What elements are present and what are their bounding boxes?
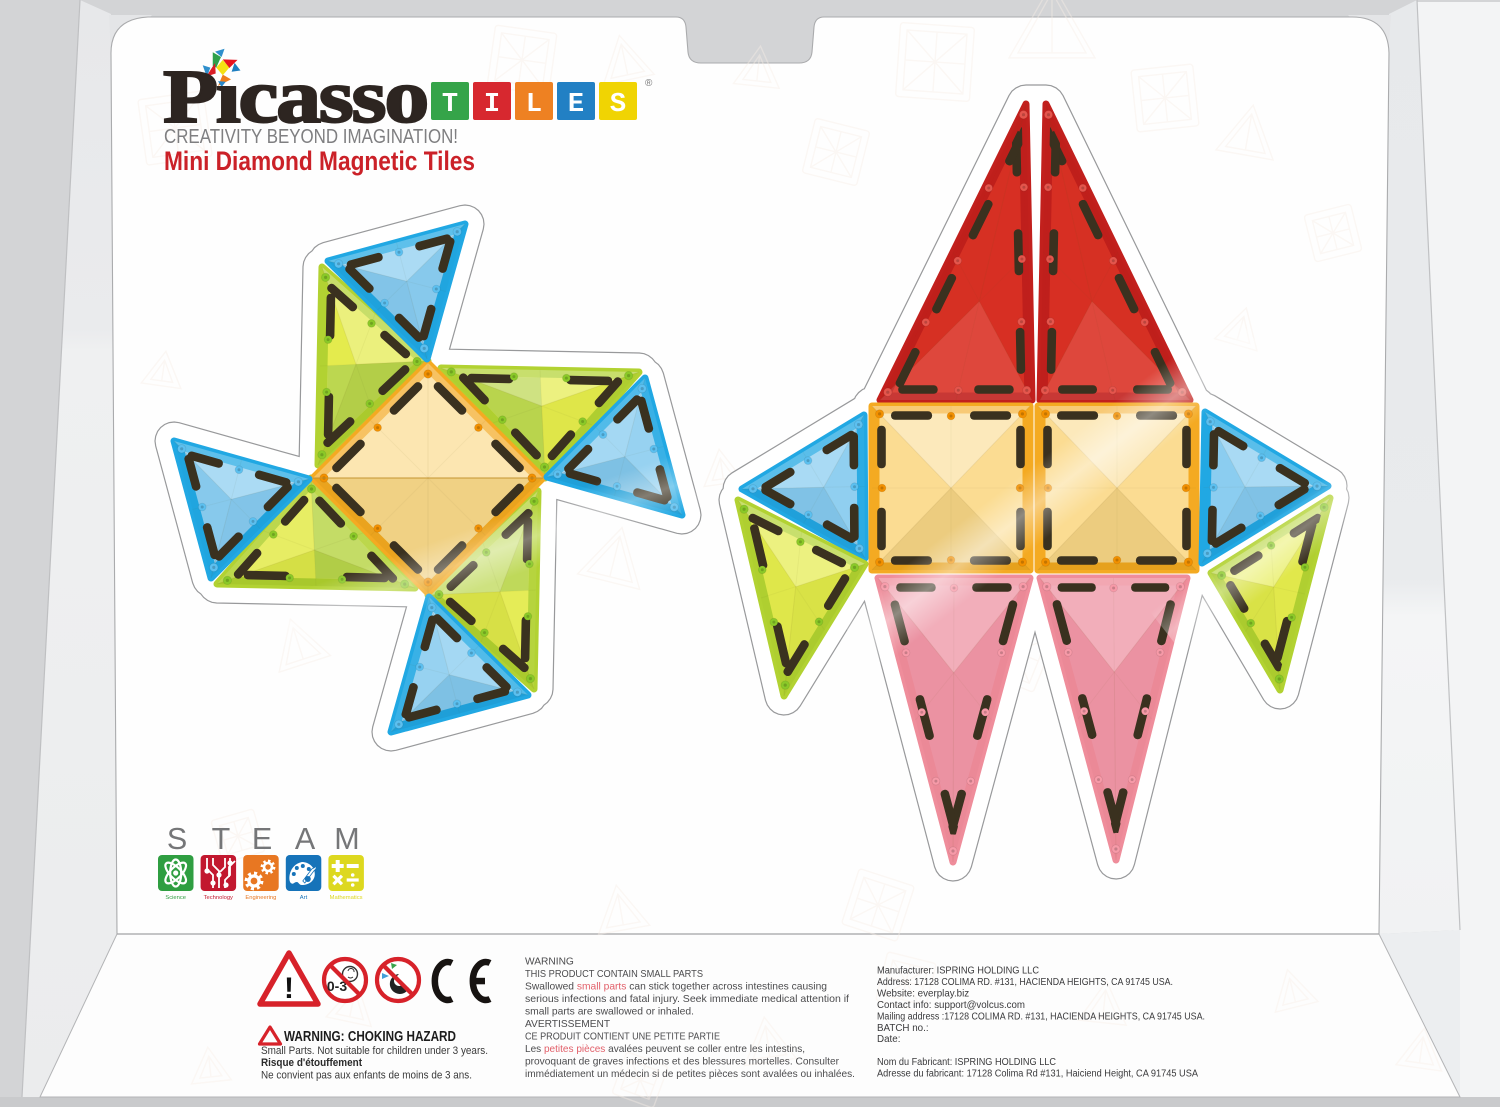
svg-text:E: E bbox=[568, 90, 584, 120]
svg-text:Science: Science bbox=[165, 895, 186, 901]
svg-text:L: L bbox=[526, 90, 542, 120]
svg-text:S: S bbox=[167, 822, 187, 856]
svg-text:Technology: Technology bbox=[204, 895, 233, 901]
svg-text:Manufacturer: ISPRING HOLDING: Manufacturer: ISPRING HOLDING LLC bbox=[877, 966, 1039, 977]
svg-text:Contact info: support@volcus.c: Contact info: support@volcus.com bbox=[877, 1000, 1025, 1011]
svg-text:A: A bbox=[295, 822, 316, 856]
svg-text:Address: 17128 COLIMA RD. #131: Address: 17128 COLIMA RD. #131, HACIENDA… bbox=[877, 977, 1173, 988]
svg-text:small parts are swallowed or i: small parts are swallowed or inhaled. bbox=[525, 1007, 694, 1018]
svg-text:serious infections and fatal i: serious infections and fatal injury. See… bbox=[525, 994, 849, 1005]
svg-text:CE PRODUIT CONTIENT UNE PETITE: CE PRODUIT CONTIENT UNE PETITE PARTIE bbox=[525, 1031, 720, 1042]
svg-text:Ne convient pas aux enfants de: Ne convient pas aux enfants de moins de … bbox=[261, 1070, 472, 1082]
svg-text:®: ® bbox=[645, 78, 653, 89]
svg-text:Swallowed small parts can stic: Swallowed small parts can stick together… bbox=[525, 982, 827, 993]
svg-text:Mailing address :17128 COLIMA: Mailing address :17128 COLIMA RD. #131, … bbox=[877, 1011, 1205, 1022]
svg-text:AVERTISSEMENT: AVERTISSEMENT bbox=[525, 1019, 610, 1030]
svg-text:WARNING: WARNING bbox=[525, 957, 574, 968]
svg-text:Mini Diamond Magnetic Tiles: Mini Diamond Magnetic Tiles bbox=[164, 146, 475, 176]
svg-text:Mathematics: Mathematics bbox=[330, 895, 363, 901]
svg-text:Risque d'étouffement: Risque d'étouffement bbox=[261, 1057, 362, 1069]
svg-text:Les petites pièces avalées peu: Les petites pièces avalées peuvent se co… bbox=[525, 1044, 805, 1055]
svg-text:Art: Art bbox=[300, 895, 308, 901]
svg-text:CREATIVITY BEYOND IMAGINATION!: CREATIVITY BEYOND IMAGINATION! bbox=[164, 126, 458, 148]
svg-text:I: I bbox=[484, 90, 500, 120]
svg-text:provoquant de graves infection: provoquant de graves infections et des b… bbox=[525, 1056, 840, 1067]
svg-text:T: T bbox=[442, 90, 458, 120]
svg-text:BATCH no.:: BATCH no.: bbox=[877, 1023, 929, 1034]
svg-text:immédiatement un médecin si de: immédiatement un médecin si de petites p… bbox=[525, 1069, 855, 1080]
svg-text:Nom du Fabricant: ISPRING HOLD: Nom du Fabricant: ISPRING HOLDING LLC bbox=[877, 1057, 1056, 1068]
svg-text:!: ! bbox=[284, 972, 294, 1005]
svg-text:THIS PRODUCT CONTAIN SMALL PAR: THIS PRODUCT CONTAIN SMALL PARTS bbox=[525, 969, 703, 980]
svg-text:Date:: Date: bbox=[877, 1034, 900, 1045]
svg-text:T: T bbox=[212, 822, 231, 856]
svg-text:WARNING: CHOKING HAZARD: WARNING: CHOKING HAZARD bbox=[284, 1029, 456, 1045]
svg-text:Website: everplay.biz: Website: everplay.biz bbox=[877, 988, 969, 999]
svg-text:M: M bbox=[334, 822, 359, 856]
svg-text:Engineering: Engineering bbox=[245, 895, 276, 901]
svg-text:Adresse du fabricant: 17128 Co: Adresse du fabricant: 17128 Colima Rd #1… bbox=[877, 1069, 1198, 1080]
svg-text:E: E bbox=[252, 822, 272, 856]
svg-text:Small Parts. Not suitable for: Small Parts. Not suitable for children u… bbox=[261, 1045, 488, 1057]
svg-text:S: S bbox=[610, 90, 626, 120]
